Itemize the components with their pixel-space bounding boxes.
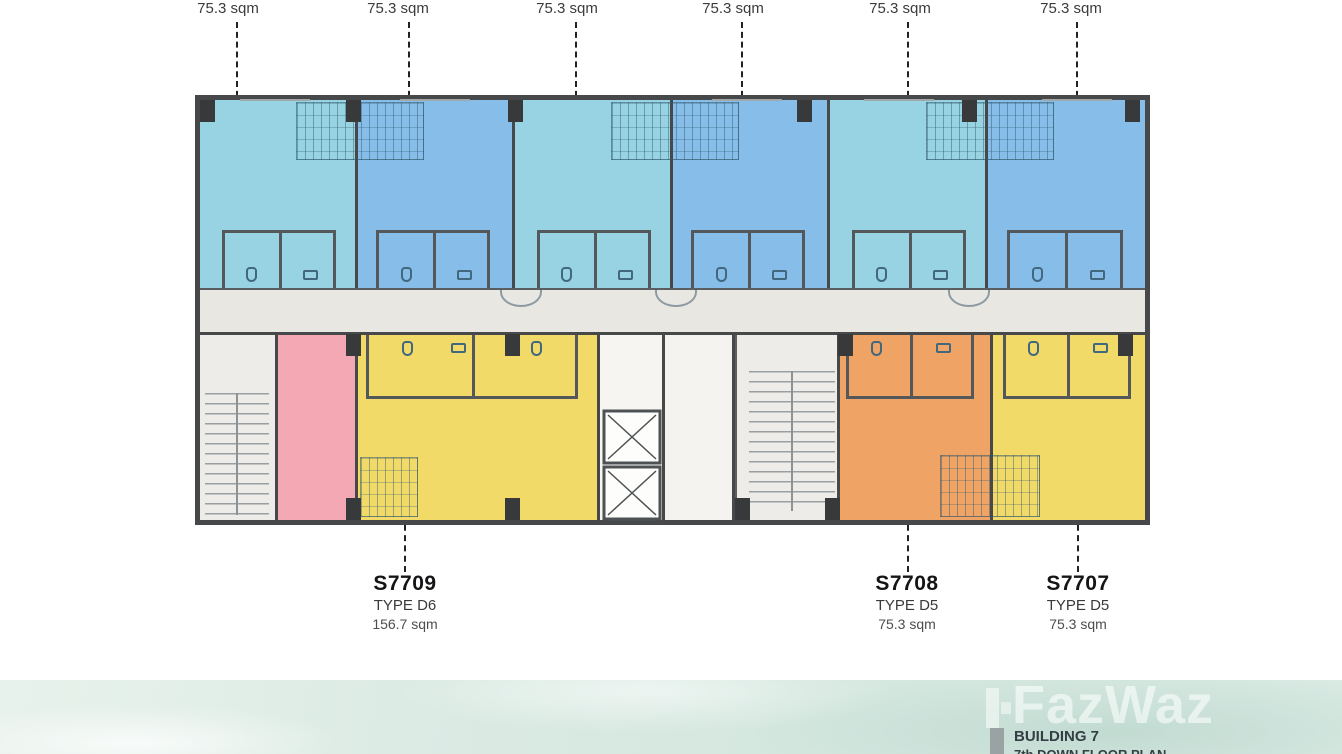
bathroom-pod	[366, 335, 578, 399]
bottom-band	[200, 332, 1145, 520]
unit-type: TYPE D6	[325, 596, 485, 615]
window-segment	[240, 99, 310, 101]
watermark-mark-icon	[986, 688, 999, 728]
sink-icon	[936, 343, 951, 353]
column-block	[346, 498, 361, 520]
pod-wall	[594, 233, 597, 288]
loft-stairs-sketch	[360, 457, 418, 517]
area-label: 75.3 sqm	[678, 0, 788, 17]
bathroom-pod	[691, 230, 805, 288]
pod-wall	[910, 335, 913, 396]
window-segment	[712, 99, 782, 101]
stairwell-left	[200, 335, 278, 520]
floor-plan	[195, 95, 1150, 525]
toilet-icon	[402, 341, 413, 356]
building-info-bar	[990, 728, 1004, 754]
window-segment	[400, 99, 470, 101]
unit-code: S7709	[325, 572, 485, 596]
unit-code: S7707	[998, 572, 1158, 596]
column-block	[962, 100, 977, 122]
floorplan-page: 75.3 sqm 75.3 sqm 75.3 sqm 75.3 sqm 75.3…	[0, 0, 1342, 754]
fazwaz-watermark: FazWaz	[1012, 674, 1214, 736]
unit-type: TYPE D5	[998, 596, 1158, 615]
sink-icon	[303, 270, 318, 280]
pod-wall	[433, 233, 436, 288]
toilet-icon	[561, 267, 572, 282]
loft-stairs-sketch	[926, 102, 1054, 160]
bathroom-pod	[852, 230, 967, 288]
bathroom-pod	[376, 230, 490, 288]
unit-s7709	[358, 335, 600, 520]
column-block	[505, 334, 520, 356]
bathroom-pod	[537, 230, 652, 288]
building-subtitle: 7th DOWN FLOOR PLAN	[1014, 747, 1166, 754]
elevator-core	[600, 335, 665, 520]
door-arc	[655, 290, 697, 307]
toilet-icon	[1032, 267, 1043, 282]
sink-icon	[451, 343, 466, 353]
column-block	[505, 498, 520, 520]
pod-wall	[909, 233, 912, 288]
door-arc	[948, 290, 990, 307]
bathroom-pod	[222, 230, 337, 288]
stair-rail	[236, 393, 238, 515]
window-segment	[864, 99, 934, 101]
column-block	[1118, 334, 1133, 356]
unit-code: S7708	[827, 572, 987, 596]
pod-wall	[748, 233, 751, 288]
unit-area: 75.3 sqm	[827, 615, 987, 633]
unit-label-group: S7708 TYPE D5 75.3 sqm	[827, 572, 987, 633]
building-title: BUILDING 7	[1014, 728, 1099, 745]
column-block	[825, 498, 840, 520]
loft-stairs-sketch	[611, 102, 739, 160]
bathroom-pod	[1003, 335, 1131, 399]
corridor	[200, 288, 1145, 332]
area-label: 75.3 sqm	[512, 0, 622, 17]
sink-icon	[457, 270, 472, 280]
column-block	[838, 334, 853, 356]
toilet-icon	[716, 267, 727, 282]
area-label: 75.3 sqm	[343, 0, 453, 17]
area-label: 75.3 sqm	[845, 0, 955, 17]
pink-room	[278, 335, 358, 520]
sink-icon	[772, 270, 787, 280]
sink-icon	[1093, 343, 1108, 353]
elevator-icon	[602, 409, 664, 521]
toilet-icon	[401, 267, 412, 282]
column-block	[735, 498, 750, 520]
area-label: 75.3 sqm	[173, 0, 283, 17]
pod-wall	[1065, 233, 1068, 288]
sink-icon	[933, 270, 948, 280]
unit-area: 156.7 sqm	[325, 615, 485, 633]
area-label: 75.3 sqm	[1016, 0, 1126, 17]
bathroom-pod	[846, 335, 974, 399]
pod-wall	[472, 335, 475, 396]
unit-area: 75.3 sqm	[998, 615, 1158, 633]
column-block	[346, 334, 361, 356]
toilet-icon	[876, 267, 887, 282]
pod-wall	[1067, 335, 1070, 396]
column-block	[200, 100, 215, 122]
sink-icon	[1090, 270, 1105, 280]
stairwell-right	[735, 335, 840, 520]
unit-label-group: S7707 TYPE D5 75.3 sqm	[998, 572, 1158, 633]
toilet-icon	[871, 341, 882, 356]
window-segment	[1042, 99, 1112, 101]
unit-type: TYPE D5	[827, 596, 987, 615]
column-block	[1125, 100, 1140, 122]
column-block	[346, 100, 361, 122]
toilet-icon	[531, 341, 542, 356]
unit-label-group: S7709 TYPE D6 156.7 sqm	[325, 572, 485, 633]
bathroom-pod	[1007, 230, 1123, 288]
column-block	[508, 100, 523, 122]
toilet-icon	[246, 267, 257, 282]
stair-rail	[791, 371, 793, 511]
door-arc	[500, 290, 542, 307]
column-block	[797, 100, 812, 122]
toilet-icon	[1028, 341, 1039, 356]
sink-icon	[618, 270, 633, 280]
loft-stairs-sketch	[940, 455, 1040, 517]
pod-wall	[279, 233, 282, 288]
lobby	[665, 335, 735, 520]
